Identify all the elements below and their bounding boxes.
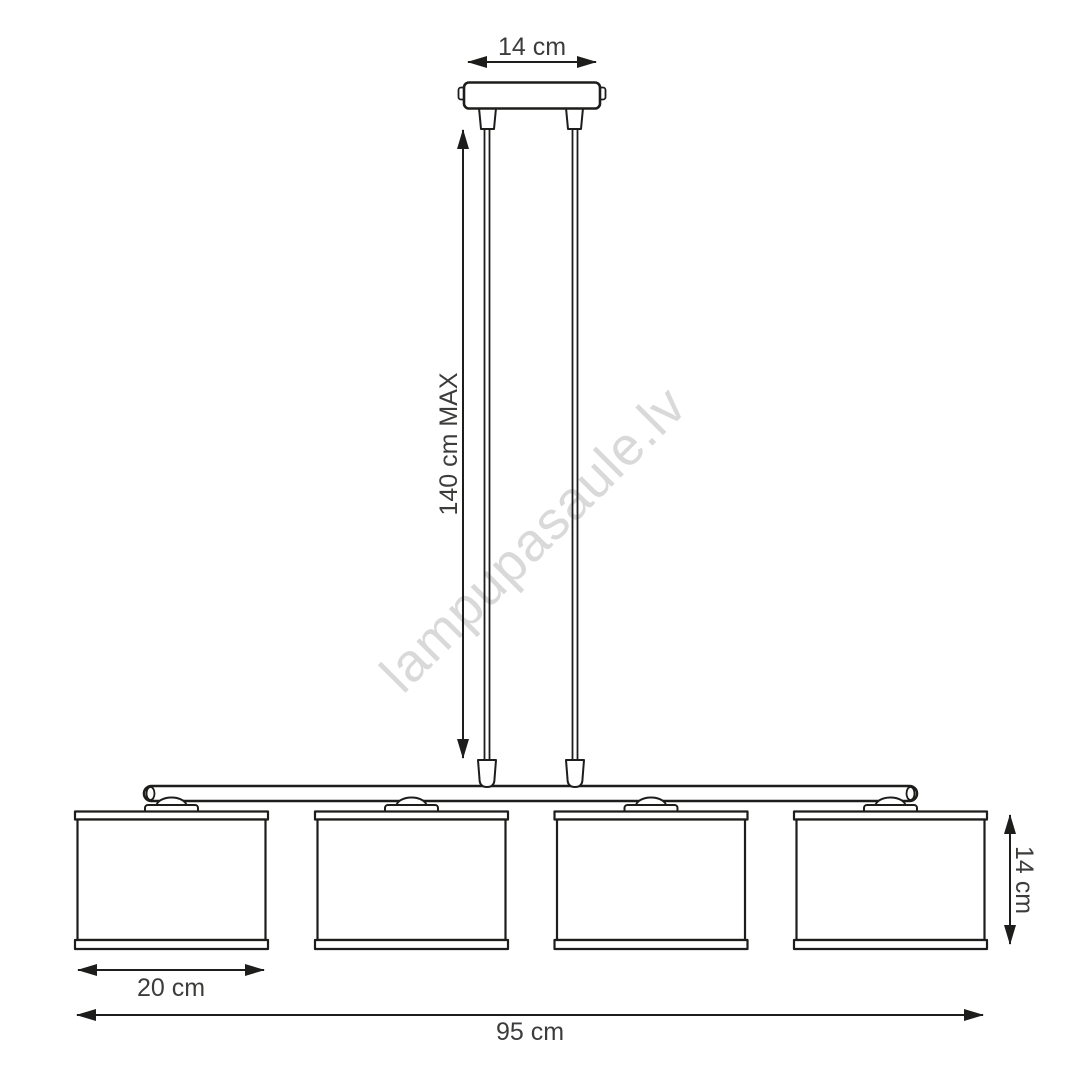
lamp-dimension-drawing-page: lampupasaule.lv: [0, 0, 1080, 1080]
cable-connector-left: [479, 108, 496, 129]
bar-end-cap-left: [147, 787, 155, 800]
cord-grip-left: [478, 760, 496, 787]
lamp-dimension-drawing: lampupasaule.lv: [0, 0, 1080, 1080]
lampshade-4: [794, 812, 987, 950]
cord-grip-right: [566, 760, 584, 787]
shade-height-label: 14 cm: [1010, 846, 1038, 914]
dimension-total-width: 95 cm: [77, 1015, 983, 1046]
max-drop-label: 140 cm MAX: [435, 372, 463, 515]
cable-connector-right: [566, 108, 583, 129]
lampshade-1: [75, 812, 268, 950]
suspension-cable-right: [573, 129, 578, 762]
ceiling-canopy: [459, 83, 606, 130]
dimension-shade-width: 20 cm: [78, 970, 264, 1002]
total-width-label: 95 cm: [496, 1018, 564, 1046]
dimension-canopy-width: 14 cm: [468, 33, 596, 62]
shade-width-label: 20 cm: [137, 974, 205, 1002]
hanging-bar: [144, 786, 917, 801]
canopy-body: [464, 83, 600, 109]
bar-end-cap-right: [907, 787, 915, 800]
lampshade-3: [555, 812, 748, 950]
watermark-text: lampupasaule.lv: [369, 375, 698, 704]
dimension-shade-height: 14 cm: [1010, 815, 1038, 944]
lampshade-2: [315, 812, 508, 950]
suspension-cable-left: [485, 129, 490, 762]
canopy-width-label: 14 cm: [498, 33, 566, 61]
